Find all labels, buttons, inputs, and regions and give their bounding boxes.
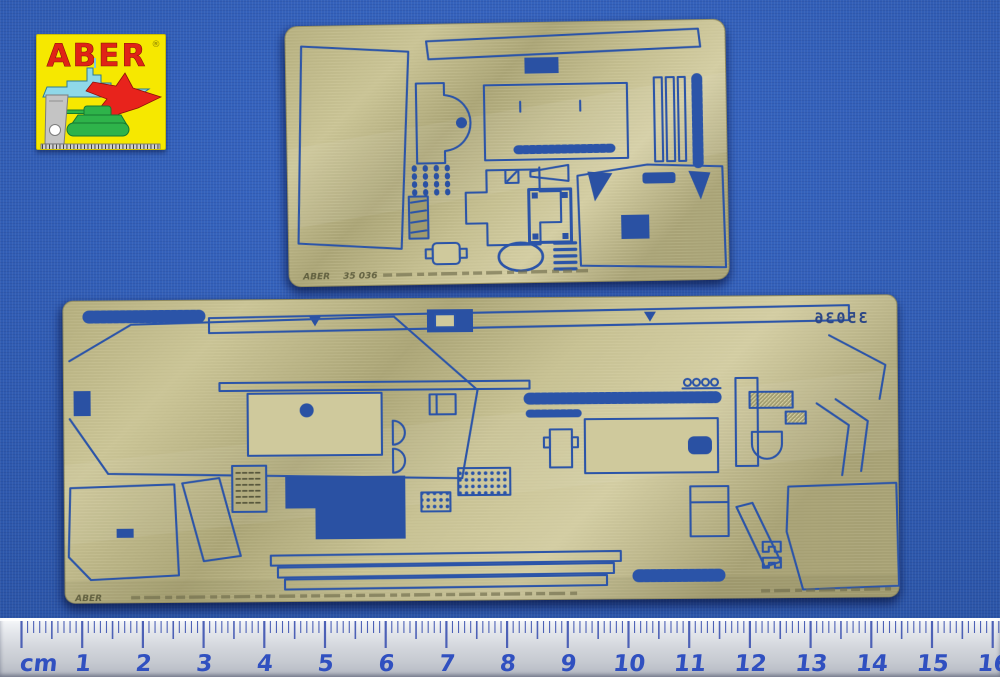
svg-text:3: 3 <box>195 651 214 677</box>
ruler-ticks <box>22 621 999 648</box>
svg-text:10: 10 <box>612 651 647 677</box>
aber-logo: ABER ® <box>36 34 166 150</box>
svg-text:7: 7 <box>438 651 457 677</box>
bottom-fret-caption-brand: ABER <box>74 594 102 604</box>
ruler-unit-label: cm <box>19 651 59 677</box>
svg-text:8: 8 <box>498 651 517 677</box>
svg-text:16: 16 <box>976 651 1000 677</box>
ruler: 12345678910111213141516 cm <box>0 618 1000 677</box>
svg-text:12: 12 <box>733 651 768 677</box>
logo-brand-text: ABER <box>47 38 148 74</box>
aber-logo-art: ABER ® <box>37 35 165 149</box>
top-fret-caption-brand: ABER <box>302 272 330 282</box>
bottom-fret-etched-number: 35036 <box>812 309 867 327</box>
set-square-icon <box>45 95 68 144</box>
ruler-numbers: 12345678910111213141516 <box>74 651 1000 677</box>
svg-text:9: 9 <box>559 651 578 677</box>
svg-text:6: 6 <box>377 651 396 677</box>
bottom-fret: 35036 ABER <box>59 289 905 614</box>
svg-text:35036: 35036 <box>812 309 867 327</box>
bottom-fret-caption-smudge-right <box>761 589 891 591</box>
svg-text:4: 4 <box>256 651 275 677</box>
svg-text:15: 15 <box>915 651 950 677</box>
registered-mark: ® <box>152 40 161 50</box>
svg-text:5: 5 <box>316 651 335 677</box>
svg-text:13: 13 <box>794 651 829 677</box>
top-fret-caption-code: 35 036 <box>343 271 378 282</box>
svg-text:2: 2 <box>134 651 153 677</box>
svg-text:14: 14 <box>855 651 890 677</box>
svg-text:11: 11 <box>673 651 708 677</box>
logo-ruler-icon <box>41 144 160 149</box>
svg-text:1: 1 <box>74 651 93 677</box>
top-fret: ABER 35 036 <box>279 12 734 292</box>
product-photo: ABER ® <box>0 0 1000 677</box>
